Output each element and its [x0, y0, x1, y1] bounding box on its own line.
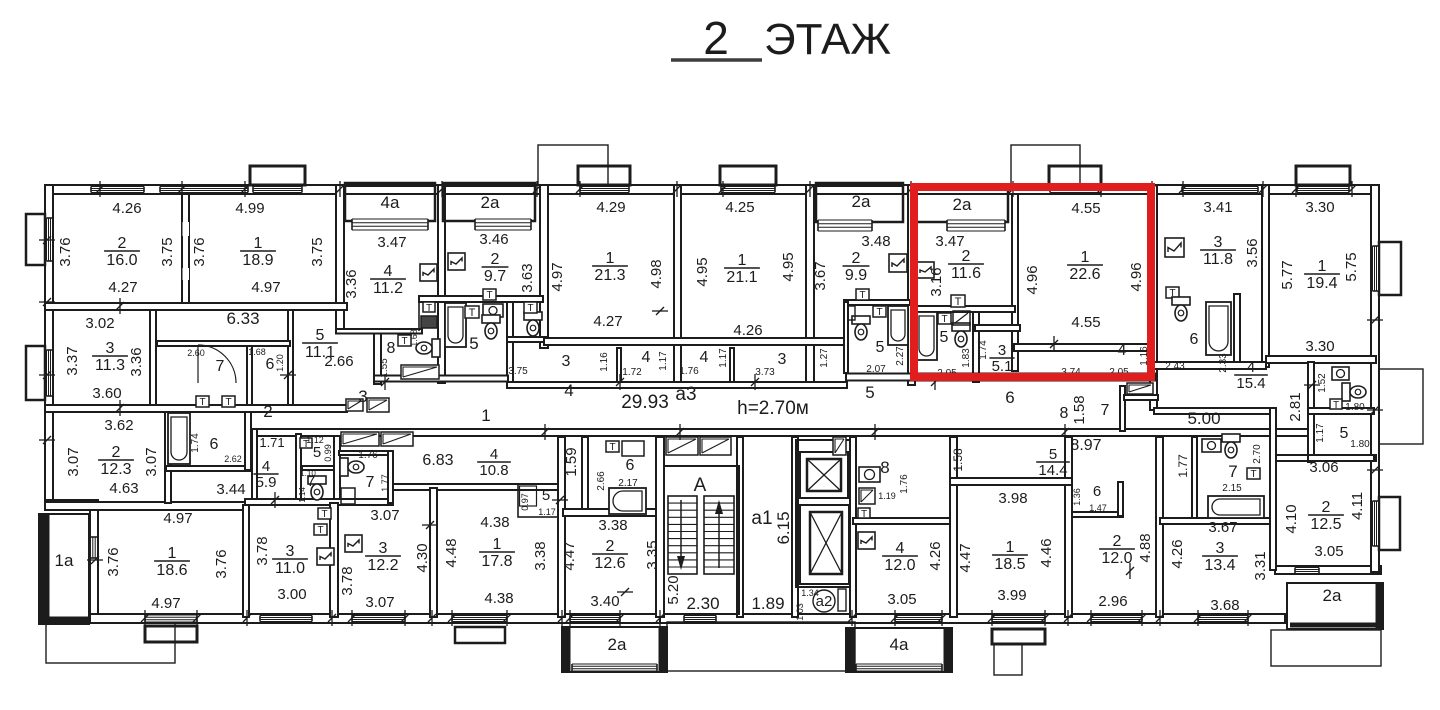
svg-text:8.97: 8.97 — [1070, 437, 1101, 454]
svg-text:3.41: 3.41 — [1203, 199, 1232, 216]
svg-text:A: A — [694, 475, 707, 496]
svg-text:2a: 2a — [608, 635, 627, 654]
svg-text:3.40: 3.40 — [590, 593, 619, 610]
svg-text:1.52: 1.52 — [1317, 373, 1328, 393]
svg-text:3: 3 — [1216, 540, 1225, 557]
svg-text:3.05: 3.05 — [1314, 543, 1343, 560]
svg-text:2.66: 2.66 — [596, 471, 607, 491]
svg-text:2.96: 2.96 — [1098, 593, 1127, 610]
svg-text:7: 7 — [216, 358, 225, 375]
svg-text:2: 2 — [962, 248, 971, 265]
svg-text:4.97: 4.97 — [251, 279, 280, 296]
svg-text:1.80: 1.80 — [1350, 439, 1370, 450]
svg-text:3.75: 3.75 — [309, 237, 326, 266]
svg-text:3.07: 3.07 — [143, 447, 160, 476]
svg-text:3.46: 3.46 — [479, 231, 508, 248]
svg-text:6: 6 — [1005, 388, 1014, 407]
svg-text:1: 1 — [1081, 249, 1090, 266]
svg-text:1.80: 1.80 — [1345, 402, 1365, 413]
svg-text:9.9: 9.9 — [845, 267, 867, 284]
svg-text:3.06: 3.06 — [1309, 459, 1338, 476]
svg-text:4.26: 4.26 — [112, 200, 141, 217]
svg-text:2.27: 2.27 — [895, 346, 906, 366]
svg-text:T: T — [469, 307, 476, 319]
svg-text:21.3: 21.3 — [594, 267, 625, 284]
svg-text:5: 5 — [542, 487, 550, 504]
svg-text:3.16: 3.16 — [928, 267, 945, 296]
svg-text:1.14: 1.14 — [298, 487, 307, 503]
svg-text:3.63: 3.63 — [519, 263, 536, 292]
svg-text:2.33: 2.33 — [1218, 353, 1229, 373]
svg-text:1: 1 — [606, 250, 615, 267]
svg-text:4.38: 4.38 — [484, 590, 513, 607]
svg-text:1: 1 — [493, 536, 502, 553]
svg-text:2.15: 2.15 — [1222, 483, 1242, 494]
svg-text:4.29: 4.29 — [596, 199, 625, 216]
svg-text:1.34: 1.34 — [801, 588, 819, 598]
svg-text:4: 4 — [896, 540, 905, 557]
svg-text:T: T — [486, 290, 492, 301]
svg-text:4: 4 — [564, 381, 573, 400]
svg-text:T: T — [955, 296, 962, 308]
svg-text:1: 1 — [1318, 258, 1327, 275]
svg-text:1: 1 — [168, 545, 177, 562]
svg-text:3.44: 3.44 — [216, 481, 245, 498]
svg-text:4a: 4a — [381, 193, 400, 212]
svg-text:2.70: 2.70 — [1252, 444, 1263, 464]
svg-text:3.31: 3.31 — [1252, 551, 1269, 580]
svg-text:3.07: 3.07 — [365, 594, 394, 611]
svg-text:2: 2 — [1113, 533, 1122, 550]
svg-text:2: 2 — [263, 402, 272, 421]
svg-text:12.3: 12.3 — [100, 461, 131, 478]
svg-text:3.47: 3.47 — [377, 234, 406, 251]
svg-text:3.98: 3.98 — [998, 490, 1027, 507]
svg-text:T: T — [321, 509, 327, 520]
svg-text:1.17: 1.17 — [538, 507, 556, 517]
svg-text:4.47: 4.47 — [957, 543, 974, 572]
svg-text:7: 7 — [1101, 402, 1110, 419]
svg-text:1a: 1a — [55, 551, 74, 570]
svg-text:4.55: 4.55 — [1071, 200, 1100, 217]
svg-text:ЭТАЖ: ЭТАЖ — [764, 15, 891, 64]
svg-text:17.8: 17.8 — [481, 553, 512, 570]
svg-text:1: 1 — [254, 235, 263, 252]
svg-text:1.72: 1.72 — [622, 367, 642, 378]
svg-text:2.43: 2.43 — [1165, 361, 1185, 372]
svg-text:3.36: 3.36 — [343, 269, 360, 298]
svg-text:6: 6 — [266, 356, 275, 373]
svg-text:3.07: 3.07 — [65, 447, 82, 476]
svg-text:12.5: 12.5 — [1310, 516, 1341, 533]
svg-text:1: 1 — [481, 406, 490, 425]
svg-text:3.38: 3.38 — [532, 541, 549, 570]
svg-text:3: 3 — [358, 387, 367, 406]
svg-text:1: 1 — [738, 252, 747, 269]
svg-text:4.96: 4.96 — [1128, 262, 1145, 291]
svg-text:2.62: 2.62 — [224, 454, 242, 464]
svg-text:4: 4 — [1247, 359, 1255, 376]
svg-text:3.60: 3.60 — [92, 385, 121, 402]
svg-text:3.02: 3.02 — [85, 315, 114, 332]
svg-text:3.78: 3.78 — [254, 536, 271, 565]
svg-text:4: 4 — [642, 349, 651, 366]
svg-text:3.00: 3.00 — [277, 586, 306, 603]
svg-text:T: T — [941, 314, 947, 325]
svg-text:8: 8 — [1060, 405, 1069, 422]
svg-text:5: 5 — [1049, 446, 1057, 463]
svg-text:0.97: 0.97 — [520, 493, 530, 511]
svg-text:3.48: 3.48 — [861, 233, 890, 250]
svg-text:1.47: 1.47 — [1089, 503, 1107, 513]
svg-text:5: 5 — [316, 327, 325, 344]
svg-text:4.38: 4.38 — [480, 514, 509, 531]
svg-text:16.0: 16.0 — [106, 252, 137, 269]
svg-text:4.27: 4.27 — [593, 313, 622, 330]
svg-text:6.15: 6.15 — [774, 511, 793, 544]
svg-text:11.0: 11.0 — [275, 560, 305, 577]
svg-text:3.68: 3.68 — [1210, 597, 1239, 614]
svg-text:1.68: 1.68 — [248, 347, 266, 357]
svg-text:2: 2 — [491, 251, 500, 268]
svg-text:T: T — [426, 303, 432, 314]
svg-text:4.26: 4.26 — [1169, 539, 1186, 568]
svg-text:21.1: 21.1 — [726, 269, 757, 286]
svg-text:2: 2 — [1322, 499, 1331, 516]
svg-text:2a: 2a — [1323, 586, 1342, 605]
svg-text:3.07: 3.07 — [370, 507, 399, 524]
svg-text:11.2: 11.2 — [373, 280, 403, 297]
svg-text:3.05: 3.05 — [887, 591, 916, 608]
svg-text:2.60: 2.60 — [187, 348, 205, 358]
svg-text:4.97: 4.97 — [163, 510, 192, 527]
svg-text:2: 2 — [112, 444, 121, 461]
svg-text:18.9: 18.9 — [242, 252, 273, 269]
svg-text:4: 4 — [262, 458, 270, 475]
svg-text:T: T — [527, 303, 533, 314]
svg-text:2.30: 2.30 — [686, 594, 719, 613]
svg-text:2.17: 2.17 — [618, 478, 638, 489]
svg-text:5: 5 — [876, 339, 885, 356]
svg-text:5: 5 — [940, 329, 949, 346]
svg-text:3: 3 — [379, 540, 388, 557]
svg-text:4.10: 4.10 — [1283, 504, 1300, 533]
svg-text:4: 4 — [1118, 342, 1127, 359]
svg-text:3.67: 3.67 — [812, 261, 829, 290]
svg-text:22.6: 22.6 — [1069, 266, 1100, 283]
svg-text:3: 3 — [562, 353, 571, 370]
svg-text:12.6: 12.6 — [594, 555, 625, 572]
svg-text:1.27: 1.27 — [819, 348, 830, 368]
svg-text:8: 8 — [387, 340, 396, 357]
svg-text:1.68: 1.68 — [409, 329, 419, 347]
svg-text:3.67: 3.67 — [1208, 519, 1237, 536]
svg-text:a1: a1 — [751, 508, 772, 529]
svg-text:4.97: 4.97 — [549, 262, 566, 291]
svg-text:1: 1 — [1006, 539, 1015, 556]
svg-text:15.4: 15.4 — [1236, 375, 1265, 392]
svg-text:T: T — [317, 525, 323, 536]
svg-text:2a: 2a — [953, 195, 972, 214]
svg-text:2: 2 — [703, 12, 729, 64]
svg-text:3.35: 3.35 — [644, 540, 661, 569]
svg-text:3.36: 3.36 — [128, 347, 145, 376]
svg-text:5: 5 — [1340, 425, 1349, 442]
svg-text:1.17: 1.17 — [658, 351, 669, 371]
svg-text:1.36: 1.36 — [1072, 488, 1082, 506]
svg-text:3.76: 3.76 — [105, 547, 122, 576]
svg-text:4.48: 4.48 — [443, 538, 460, 567]
svg-text:18.6: 18.6 — [156, 562, 187, 579]
svg-text:T: T — [1250, 469, 1256, 480]
svg-text:29.93: 29.93 — [621, 392, 669, 413]
svg-text:T: T — [859, 290, 865, 301]
svg-text:5: 5 — [313, 444, 321, 461]
svg-text:3: 3 — [286, 543, 295, 560]
svg-text:4.46: 4.46 — [1038, 538, 1055, 567]
svg-text:4.55: 4.55 — [1071, 314, 1100, 331]
svg-text:T: T — [199, 397, 205, 408]
svg-text:4: 4 — [700, 349, 709, 366]
svg-text:19.4: 19.4 — [1306, 275, 1337, 292]
svg-text:3.56: 3.56 — [1244, 238, 1261, 267]
svg-text:3.78: 3.78 — [339, 566, 356, 595]
svg-text:11.3: 11.3 — [95, 357, 125, 374]
svg-text:11.6: 11.6 — [951, 265, 981, 282]
svg-text:0.99: 0.99 — [323, 444, 333, 462]
svg-text:1.10: 1.10 — [300, 469, 316, 478]
svg-text:6.83: 6.83 — [422, 452, 453, 469]
svg-text:18.5: 18.5 — [994, 556, 1025, 573]
svg-text:4.25: 4.25 — [725, 199, 754, 216]
svg-text:5.75: 5.75 — [1343, 252, 1360, 281]
svg-text:3.99: 3.99 — [997, 587, 1026, 604]
svg-text:T: T — [861, 509, 867, 520]
svg-text:3.76: 3.76 — [57, 237, 74, 266]
svg-text:6: 6 — [626, 457, 635, 474]
svg-text:4.47: 4.47 — [561, 541, 578, 570]
svg-text:1.74: 1.74 — [190, 433, 201, 453]
svg-text:10.8: 10.8 — [479, 462, 508, 479]
svg-text:3.30: 3.30 — [1305, 199, 1334, 216]
svg-text:4.27: 4.27 — [108, 279, 137, 296]
svg-text:5.9: 5.9 — [256, 474, 277, 491]
svg-text:1.03: 1.03 — [795, 603, 805, 621]
svg-text:9.7: 9.7 — [484, 268, 506, 285]
svg-text:1.12: 1.12 — [306, 435, 324, 445]
svg-text:5: 5 — [865, 383, 874, 402]
svg-text:1.17: 1.17 — [1315, 423, 1326, 443]
svg-text:1.17: 1.17 — [718, 348, 729, 368]
svg-text:3.73: 3.73 — [755, 367, 775, 378]
svg-text:3.62: 3.62 — [104, 417, 133, 434]
svg-text:1.76: 1.76 — [899, 474, 910, 494]
svg-text:T: T — [876, 307, 882, 318]
svg-text:T: T — [609, 442, 615, 453]
svg-text:6.33: 6.33 — [226, 309, 259, 328]
svg-text:1.83: 1.83 — [961, 348, 972, 368]
svg-text:4.30: 4.30 — [414, 543, 431, 572]
svg-text:2a: 2a — [481, 193, 500, 212]
svg-text:6: 6 — [1093, 483, 1101, 500]
svg-text:3: 3 — [778, 351, 787, 368]
svg-text:1.71: 1.71 — [259, 435, 284, 450]
svg-text:T: T — [401, 336, 407, 347]
svg-text:2.07: 2.07 — [866, 364, 886, 375]
svg-text:8: 8 — [880, 458, 889, 477]
svg-text:4a: 4a — [890, 635, 909, 654]
svg-text:3.76: 3.76 — [191, 237, 208, 266]
svg-text:5.1: 5.1 — [992, 358, 1013, 375]
svg-text:3: 3 — [998, 342, 1006, 359]
svg-text:4.97: 4.97 — [151, 595, 180, 612]
svg-text:1.55: 1.55 — [379, 358, 390, 378]
svg-text:4.26: 4.26 — [927, 541, 944, 570]
svg-text:3.37: 3.37 — [64, 346, 81, 375]
svg-text:12.0: 12.0 — [884, 557, 915, 574]
svg-text:1.20: 1.20 — [275, 354, 285, 372]
svg-text:11.8: 11.8 — [1203, 251, 1233, 268]
svg-text:1.77: 1.77 — [380, 474, 390, 492]
svg-text:4: 4 — [490, 446, 498, 463]
svg-text:3: 3 — [106, 340, 115, 357]
svg-text:2.81: 2.81 — [1287, 392, 1304, 421]
svg-text:3.75: 3.75 — [159, 237, 176, 266]
svg-text:4.26: 4.26 — [733, 322, 762, 339]
svg-text:3.76: 3.76 — [213, 549, 230, 578]
svg-text:5.00: 5.00 — [1187, 409, 1220, 428]
svg-text:4.11: 4.11 — [1349, 492, 1366, 520]
svg-text:4.96: 4.96 — [1024, 265, 1041, 294]
svg-text:3.30: 3.30 — [1305, 338, 1334, 355]
svg-text:1.58: 1.58 — [1071, 395, 1088, 424]
svg-text:5: 5 — [469, 334, 478, 353]
svg-text:4.98: 4.98 — [648, 259, 665, 288]
svg-text:2: 2 — [606, 538, 615, 555]
svg-text:4.99: 4.99 — [235, 200, 264, 217]
svg-text:4.88: 4.88 — [1137, 533, 1154, 562]
svg-text:12.0: 12.0 — [1101, 550, 1132, 567]
svg-text:5.20: 5.20 — [665, 575, 682, 604]
svg-text:1.59: 1.59 — [563, 447, 580, 476]
svg-text:6: 6 — [210, 436, 219, 453]
svg-text:1.77: 1.77 — [1176, 454, 1190, 478]
svg-text:5.77: 5.77 — [1279, 260, 1296, 289]
svg-text:a3: a3 — [675, 384, 696, 405]
svg-text:7: 7 — [1228, 462, 1237, 481]
svg-text:13.4: 13.4 — [1204, 557, 1235, 574]
svg-text:3: 3 — [1214, 234, 1223, 251]
svg-text:2: 2 — [118, 235, 127, 252]
svg-text:T: T — [1333, 400, 1339, 411]
svg-text:1.19: 1.19 — [878, 491, 896, 501]
svg-text:1.58: 1.58 — [951, 448, 965, 472]
svg-text:2a: 2a — [852, 192, 871, 211]
svg-text:4.63: 4.63 — [109, 480, 138, 497]
svg-text:14.4: 14.4 — [1038, 462, 1067, 479]
svg-text:1.76: 1.76 — [679, 366, 699, 377]
svg-text:h=2.70м: h=2.70м — [737, 398, 809, 419]
svg-text:1.89: 1.89 — [751, 594, 784, 613]
svg-text:6: 6 — [1190, 331, 1199, 348]
svg-text:4.95: 4.95 — [694, 257, 711, 286]
svg-text:1.16: 1.16 — [599, 352, 610, 372]
svg-text:3.47: 3.47 — [935, 233, 964, 250]
svg-text:3.75: 3.75 — [508, 366, 528, 377]
svg-text:3.38: 3.38 — [598, 517, 627, 534]
svg-text:1.76: 1.76 — [358, 450, 378, 461]
svg-text:T: T — [225, 397, 231, 408]
svg-text:1.74: 1.74 — [978, 340, 989, 360]
svg-text:4: 4 — [384, 263, 393, 280]
svg-text:2: 2 — [852, 250, 861, 267]
svg-text:12.2: 12.2 — [367, 557, 398, 574]
svg-text:7: 7 — [366, 474, 375, 491]
svg-text:2.66: 2.66 — [324, 353, 353, 370]
svg-text:4.95: 4.95 — [780, 252, 797, 281]
